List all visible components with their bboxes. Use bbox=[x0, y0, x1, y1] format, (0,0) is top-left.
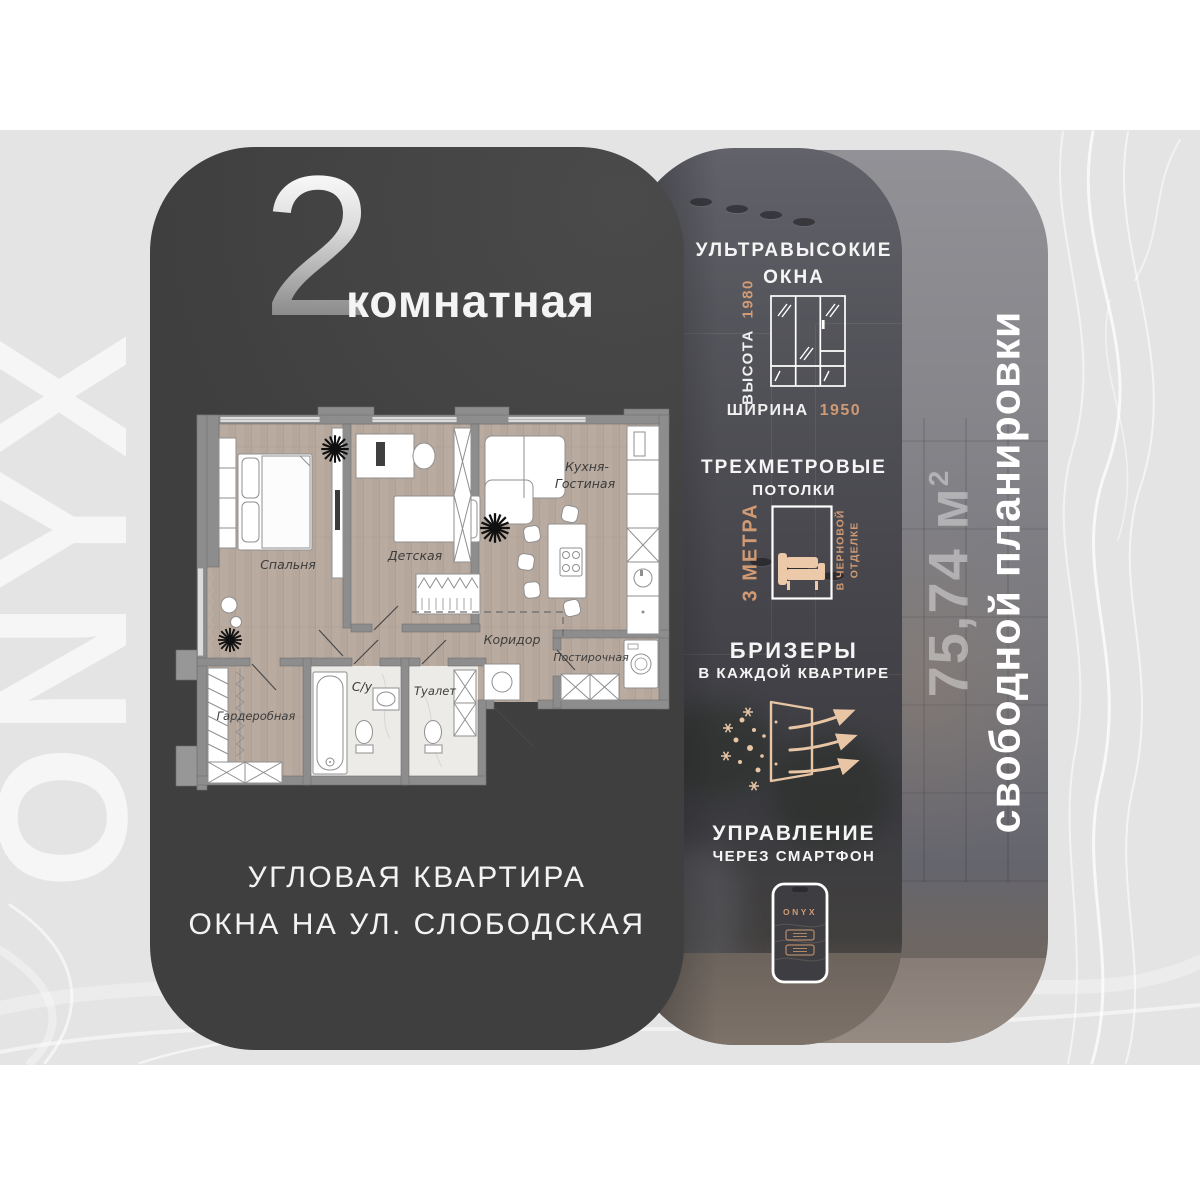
height-value: 1980 bbox=[740, 279, 757, 318]
room-label-kids: Детская bbox=[387, 548, 443, 563]
feature-ceilings-title2: ПОТОЛКИ bbox=[686, 481, 902, 501]
ceiling-room-icon bbox=[771, 505, 833, 600]
hatched-closet-icon bbox=[454, 428, 471, 562]
sink-icon bbox=[373, 688, 399, 710]
room-label-laundry: Постирочная bbox=[553, 651, 629, 664]
window-icon bbox=[770, 295, 846, 387]
plant-icon bbox=[480, 513, 510, 543]
feature-smart-title2: ЧЕРЕЗ СМАРТФОН bbox=[686, 847, 902, 867]
window-diagram: ВЫСОТА 1980 bbox=[686, 292, 902, 432]
smartphone-icon: ONYX bbox=[771, 882, 829, 984]
window-width-dimension: ШИРИНА 1950 bbox=[686, 402, 902, 420]
toilet-icon bbox=[425, 721, 443, 754]
feature-breezers-title2: В КАЖДОЙ КВАРТИРЕ bbox=[686, 664, 902, 684]
finish-note-line1: В ЧЕРНОВОЙ bbox=[834, 510, 848, 591]
rooms-word: комнатная bbox=[346, 274, 595, 328]
lamp-icon bbox=[231, 617, 242, 628]
console-pouf-icon bbox=[484, 664, 520, 700]
area-number: 75,74 м bbox=[917, 486, 980, 697]
room-label-toilet: Туалет bbox=[414, 684, 456, 698]
chair-icon bbox=[221, 597, 237, 613]
room-label-kitchen2: Гостиная bbox=[555, 476, 616, 491]
width-label: ШИРИНА bbox=[727, 402, 809, 419]
feature-smart-title: УПРАВЛЕНИЕ bbox=[686, 820, 902, 848]
room-label-wardrobe: Гардеробная bbox=[217, 709, 296, 723]
feature-breezers-title: БРИЗЕРЫ bbox=[686, 636, 902, 666]
breezer-icon bbox=[714, 692, 874, 800]
height-label: ВЫСОТА bbox=[740, 329, 757, 405]
area-superscript: 2 bbox=[923, 469, 954, 487]
plan-card: 2 комнатная bbox=[150, 147, 684, 1050]
kitchen-counter-icon bbox=[627, 426, 659, 634]
plant-icon bbox=[218, 628, 242, 652]
area-value: 75,74 м2 bbox=[916, 469, 981, 698]
toilet-cabinet-icon bbox=[454, 670, 476, 736]
bench-rack-icon bbox=[416, 574, 480, 614]
width-value: 1950 bbox=[820, 402, 862, 419]
room-label-bathroom: С/у bbox=[352, 679, 373, 694]
room-label-corridor: Коридор bbox=[484, 632, 541, 647]
window-height-dimension: ВЫСОТА 1980 bbox=[740, 279, 757, 405]
bed-icon bbox=[238, 454, 312, 550]
laundry-closet-icon bbox=[561, 674, 619, 700]
poster: ONYX 75,74 м2 свободной планировки УЛЬТР… bbox=[0, 0, 1200, 1200]
footer-line2: ОКНА НА УЛ. СЛОБОДСКАЯ bbox=[150, 902, 684, 949]
room-label-kitchen1: Кухня- bbox=[565, 459, 609, 474]
feature-windows-title2: ОКНА bbox=[686, 265, 902, 291]
area-subtitle: свободной планировки bbox=[982, 311, 1031, 834]
floor-plan: Спальня Детская Кухня- Гостиная Коридор … bbox=[172, 402, 672, 802]
bedroom-closet-icon bbox=[219, 438, 236, 548]
feature-windows-title: УЛЬТРАВЫСОКИЕ bbox=[686, 238, 902, 264]
washer-icon bbox=[624, 640, 658, 688]
phone-brand-label: ONYX bbox=[783, 907, 817, 917]
sofa-icon bbox=[778, 553, 825, 590]
plan-footer: УГЛОВАЯ КВАРТИРА ОКНА НА УЛ. СЛОБОДСКАЯ bbox=[150, 855, 684, 948]
ceiling-height-label: 3 МЕТРА bbox=[740, 503, 763, 602]
brand-watermark: ONYX bbox=[0, 325, 169, 889]
ceiling-diagram: 3 МЕТРА В ЧЕРНОВОЙ ОТДЕЛКЕ bbox=[686, 502, 902, 614]
feature-ceilings-title: ТРЕХМЕТРОВЫЕ bbox=[686, 455, 902, 481]
toilet-icon bbox=[356, 721, 374, 754]
room-label-bedroom: Спальня bbox=[260, 557, 316, 572]
bath-icon bbox=[313, 672, 347, 774]
footer-line1: УГЛОВАЯ КВАРТИРА bbox=[150, 855, 684, 902]
finish-note: В ЧЕРНОВОЙ ОТДЕЛКЕ bbox=[834, 510, 861, 591]
finish-note-line2: ОТДЕЛКЕ bbox=[848, 510, 862, 591]
plant-icon bbox=[321, 435, 349, 463]
entrance-door-line bbox=[494, 707, 534, 747]
